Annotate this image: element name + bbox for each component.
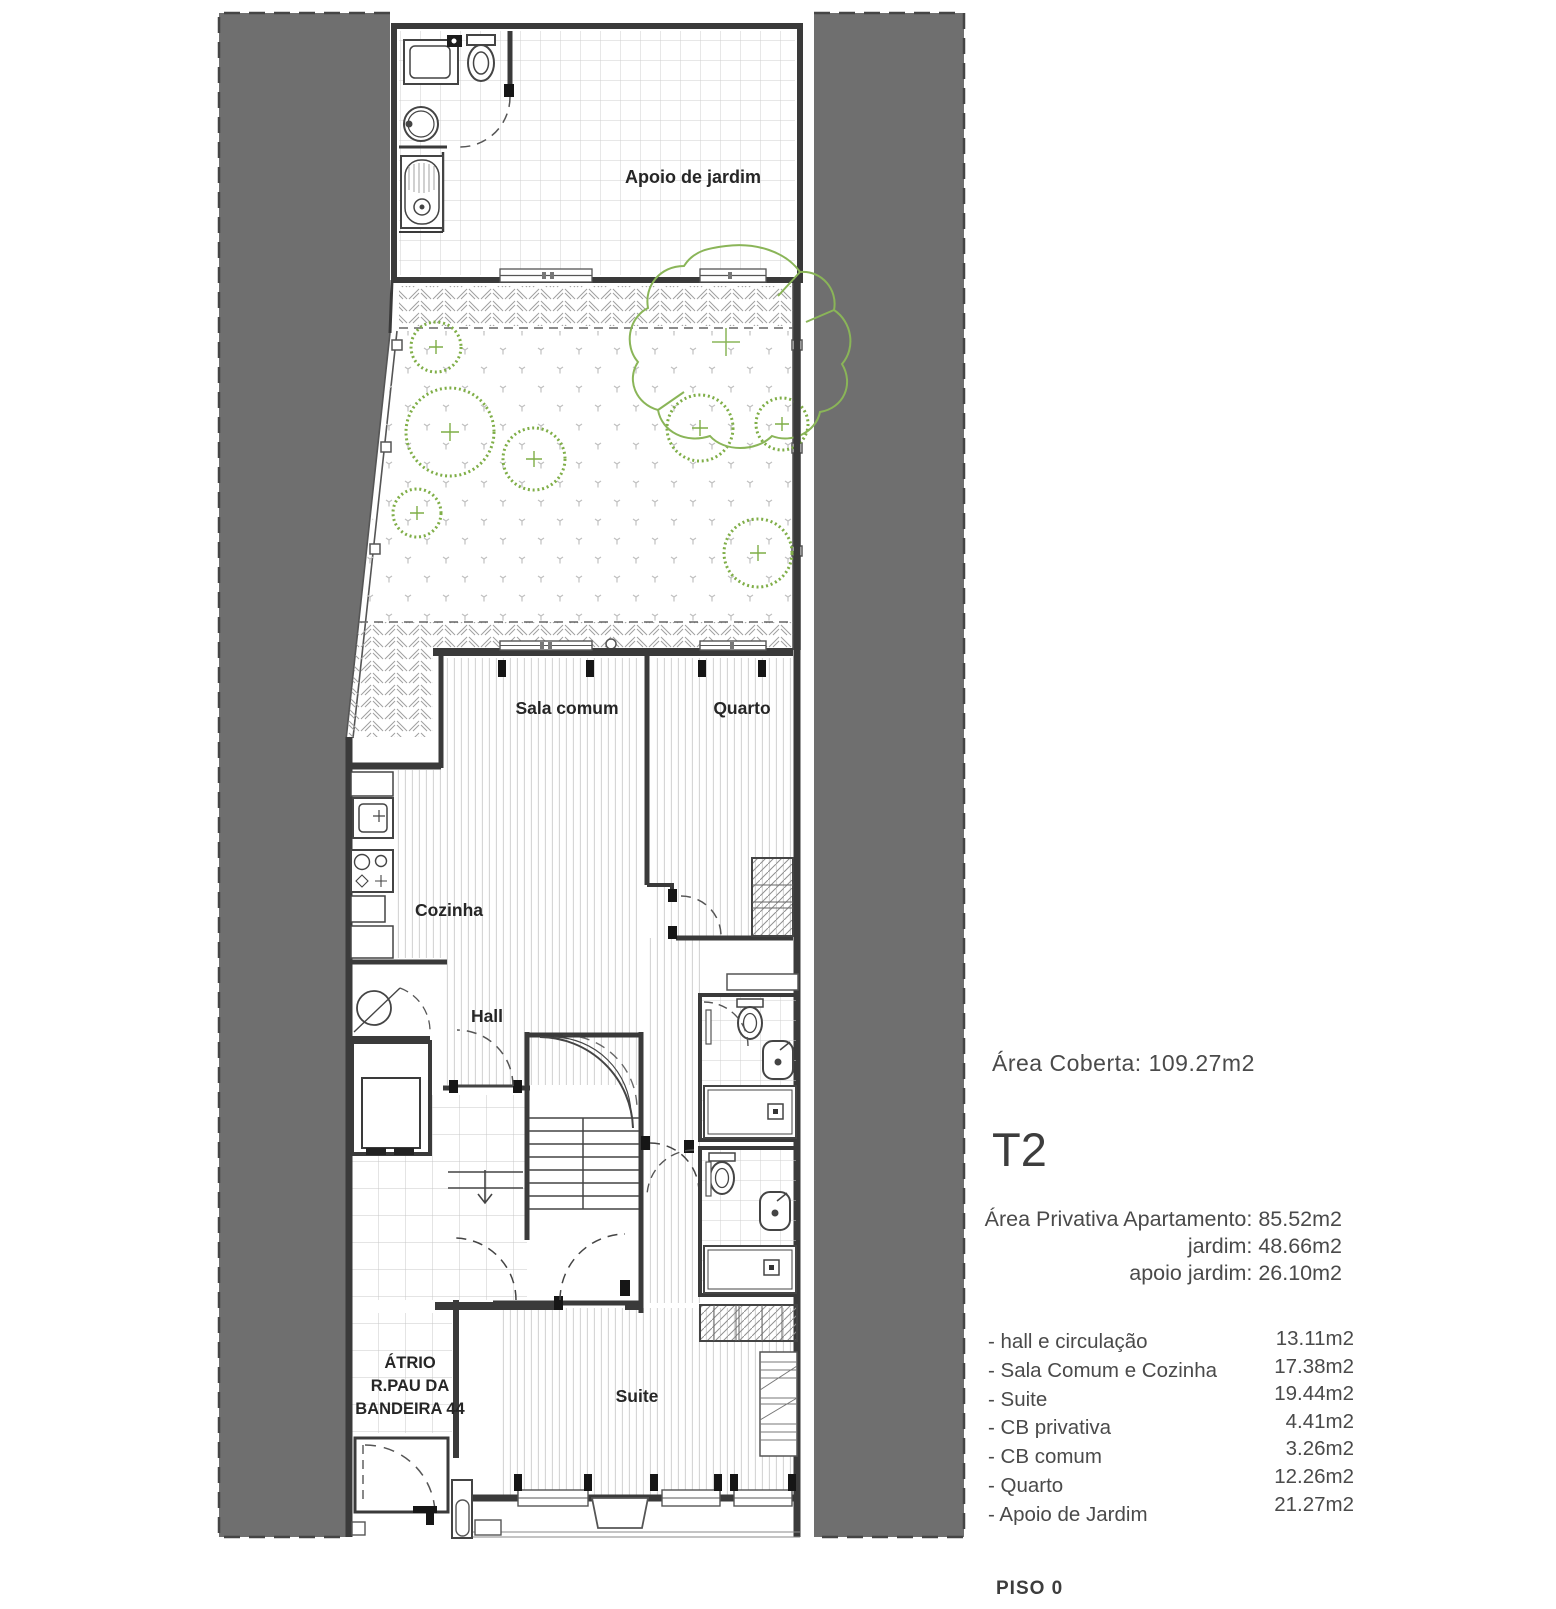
area-coberta-text: Área Coberta: 109.27m2 [992, 1050, 1255, 1077]
door-jamb [504, 84, 514, 97]
right-neighbor-band [814, 13, 964, 1537]
garden-ground [359, 331, 793, 622]
suite-closet [760, 1352, 797, 1456]
toilet [467, 35, 495, 81]
room-area-value: 21.27m2 [1100, 1491, 1354, 1519]
kitchen-floor [397, 770, 443, 958]
toilet [737, 999, 763, 1007]
label-quarto: Quarto [713, 698, 770, 718]
suite-wardrobe [700, 1305, 797, 1341]
label-atrio-line3: BANDEIRA 44 [355, 1400, 465, 1418]
room-area-value: 3.26m2 [1100, 1435, 1354, 1463]
label-suite: Suite [616, 1386, 659, 1406]
bathroom-common [700, 974, 798, 1140]
floor-plan-page: Apoio de jardim [0, 0, 1556, 1609]
french-door [592, 1498, 648, 1528]
shelf-niche [727, 974, 798, 990]
paving-band-top [399, 286, 793, 326]
room-area-value: 12.26m2 [1100, 1463, 1354, 1491]
room-area-value: 19.44m2 [1100, 1380, 1354, 1408]
private-area-garden-support: apoio jardim: 26.10m2 [958, 1260, 1342, 1287]
bedroom-wardrobe [752, 858, 793, 936]
private-area-garden: jardim: 48.66m2 [958, 1233, 1342, 1260]
label-sala-comum: Sala comum [515, 698, 618, 718]
label-cozinha: Cozinha [415, 900, 483, 920]
room-area-value: 13.11m2 [1100, 1325, 1354, 1353]
kitchen-counter [351, 772, 393, 958]
unit-type-title: T2 [992, 1122, 1047, 1177]
window [500, 269, 592, 282]
window [518, 1490, 588, 1506]
atrium-floor [352, 1156, 430, 1300]
round-sink [404, 107, 438, 141]
bathtub [401, 156, 443, 228]
toilet [709, 1153, 735, 1161]
label-atrio-line2: R.PAU DA [371, 1377, 450, 1395]
floor-label: PISO 0 [996, 1578, 1063, 1600]
wc-nook [354, 988, 430, 1032]
label-apoio-de-jardim: Apoio de jardim [625, 167, 761, 187]
room-area-value: 17.38m2 [1100, 1353, 1354, 1381]
garden-support-room: Apoio de jardim [394, 26, 800, 282]
private-areas-block: Área Privativa Apartamento: 85.52m2 jard… [958, 1206, 1342, 1287]
window [700, 269, 766, 282]
private-area-apartment: Área Privativa Apartamento: 85.52m2 [958, 1206, 1342, 1233]
entry-vestibule [352, 1438, 501, 1538]
window [734, 1490, 792, 1506]
corridor-floor [644, 938, 700, 1303]
atrium-floor [430, 1095, 527, 1300]
room-area-value: 4.41m2 [1100, 1408, 1354, 1436]
label-hall: Hall [471, 1006, 503, 1026]
room-areas-values: 13.11m2 17.38m2 19.44m2 4.41m2 3.26m2 12… [1100, 1325, 1354, 1518]
window [662, 1490, 720, 1506]
elevator [352, 1042, 430, 1155]
label-atrio-line1: ÁTRIO [384, 1353, 435, 1372]
